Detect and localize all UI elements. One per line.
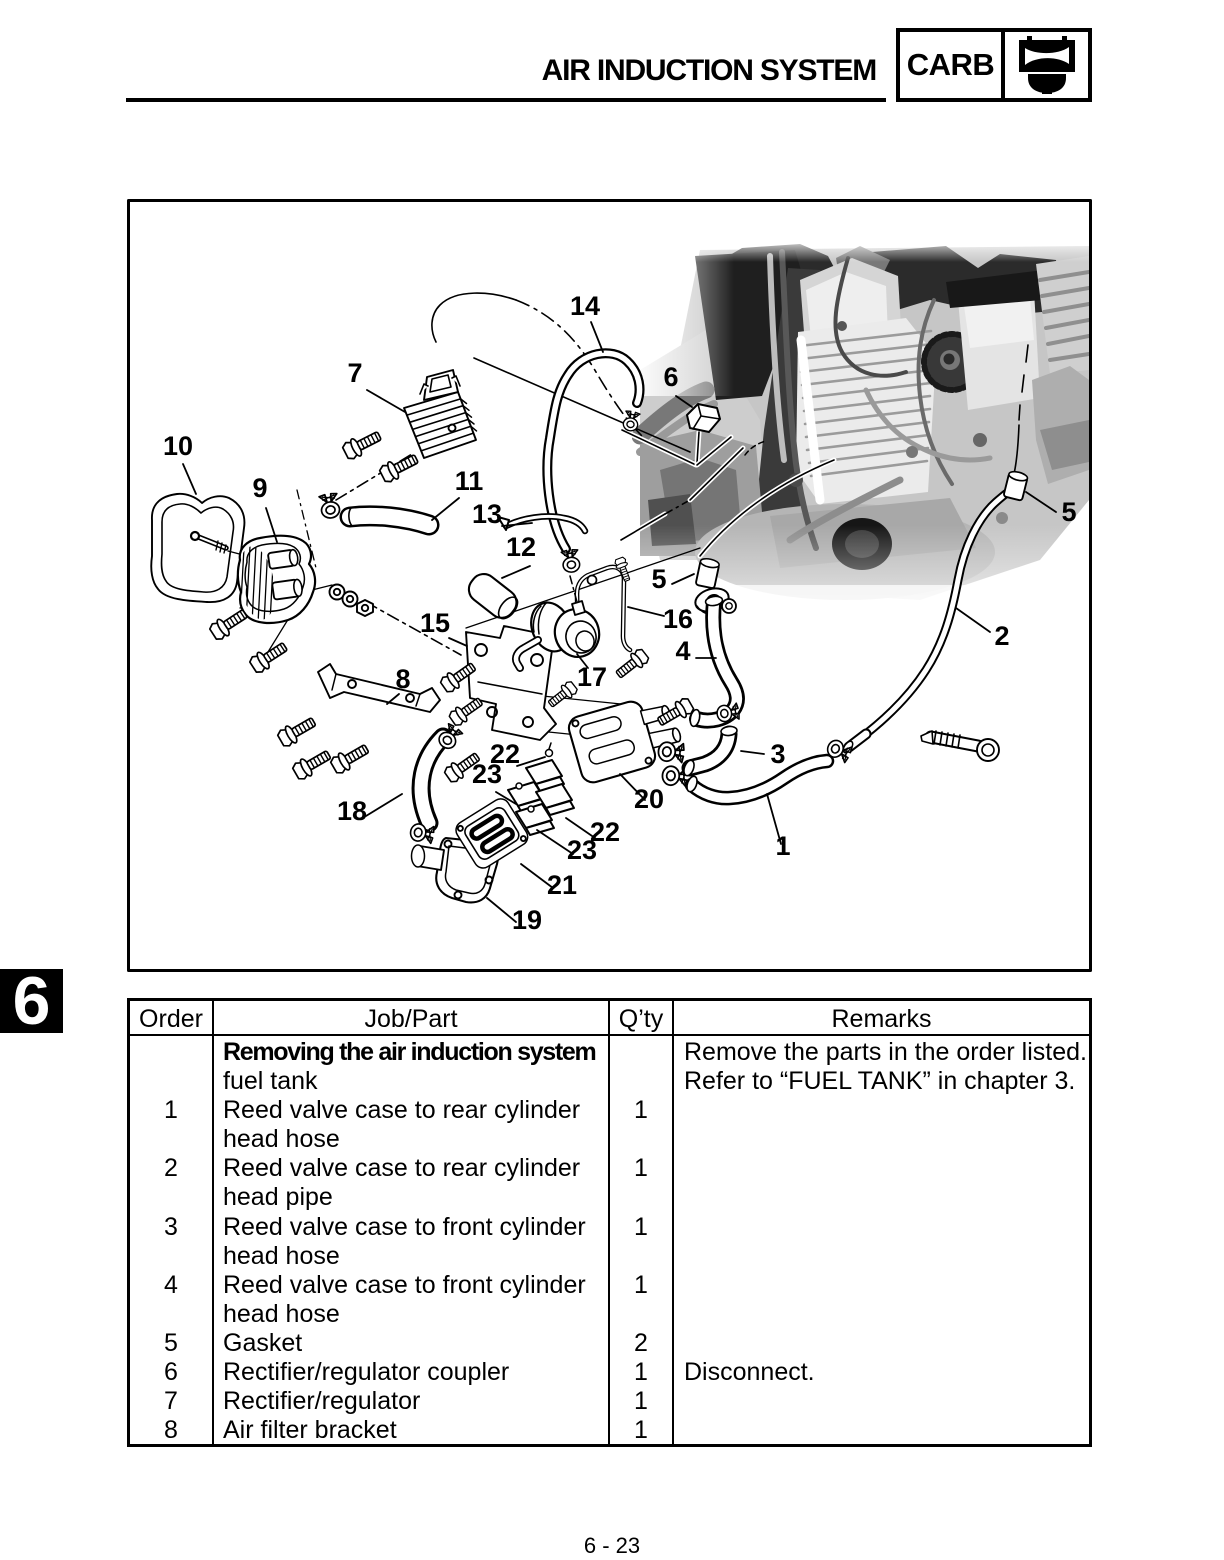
svg-text:10: 10 — [163, 431, 193, 461]
svg-text:14: 14 — [570, 291, 600, 321]
svg-text:23: 23 — [567, 835, 597, 865]
svg-text:20: 20 — [634, 784, 664, 814]
svg-text:11: 11 — [455, 466, 484, 496]
svg-text:19: 19 — [512, 905, 542, 935]
svg-text:12: 12 — [506, 532, 536, 562]
svg-text:9: 9 — [252, 473, 267, 503]
svg-text:21: 21 — [547, 870, 577, 900]
svg-text:2: 2 — [994, 621, 1009, 651]
svg-text:23: 23 — [472, 759, 502, 789]
svg-text:4: 4 — [675, 636, 690, 666]
svg-text:6: 6 — [663, 362, 678, 392]
svg-text:1: 1 — [775, 831, 790, 861]
svg-text:3: 3 — [770, 739, 785, 769]
svg-text:7: 7 — [347, 358, 362, 388]
svg-text:18: 18 — [337, 796, 367, 826]
svg-text:8: 8 — [395, 664, 410, 694]
svg-text:13: 13 — [472, 499, 502, 529]
svg-text:5: 5 — [1061, 497, 1076, 527]
svg-text:16: 16 — [663, 604, 693, 634]
svg-text:17: 17 — [577, 662, 607, 692]
svg-text:5: 5 — [651, 564, 666, 594]
svg-text:15: 15 — [420, 608, 450, 638]
